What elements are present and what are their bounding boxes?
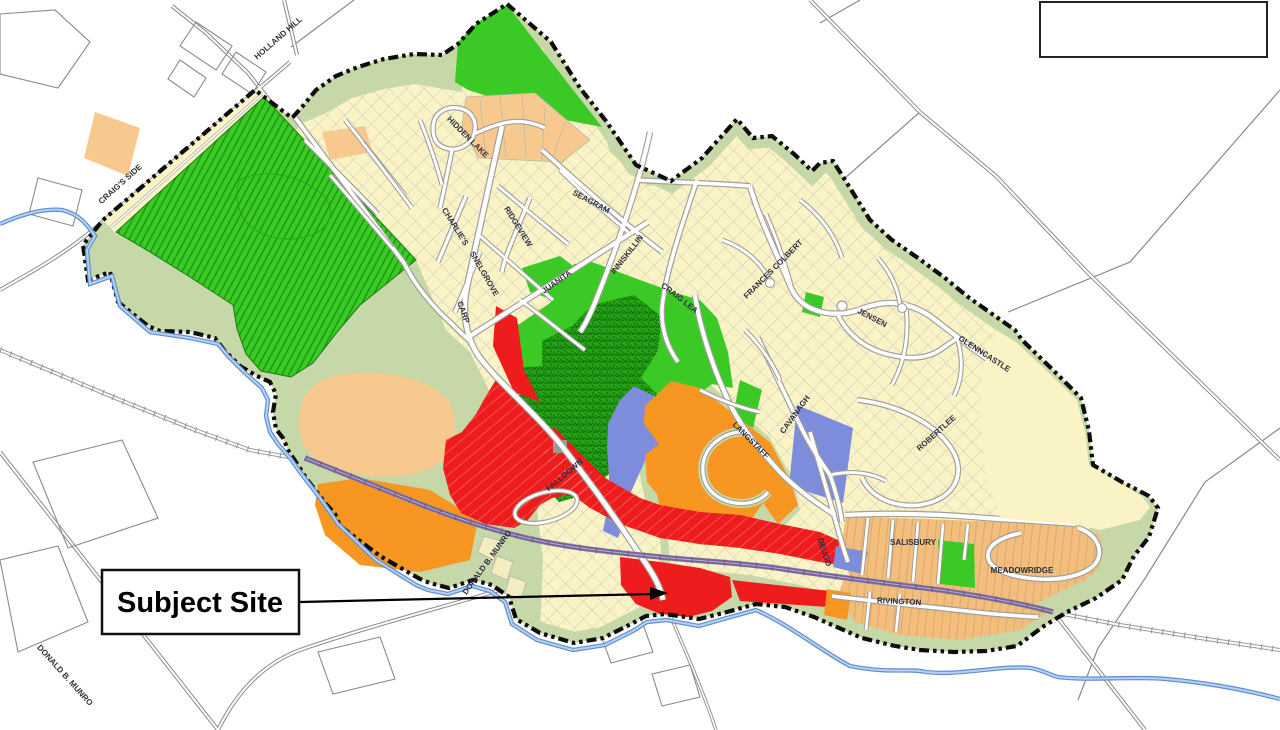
svg-text:MEADOWRIDGE: MEADOWRIDGE <box>991 566 1054 575</box>
svg-text:Subject Site: Subject Site <box>117 587 283 619</box>
svg-text:SALISBURY: SALISBURY <box>890 538 937 547</box>
